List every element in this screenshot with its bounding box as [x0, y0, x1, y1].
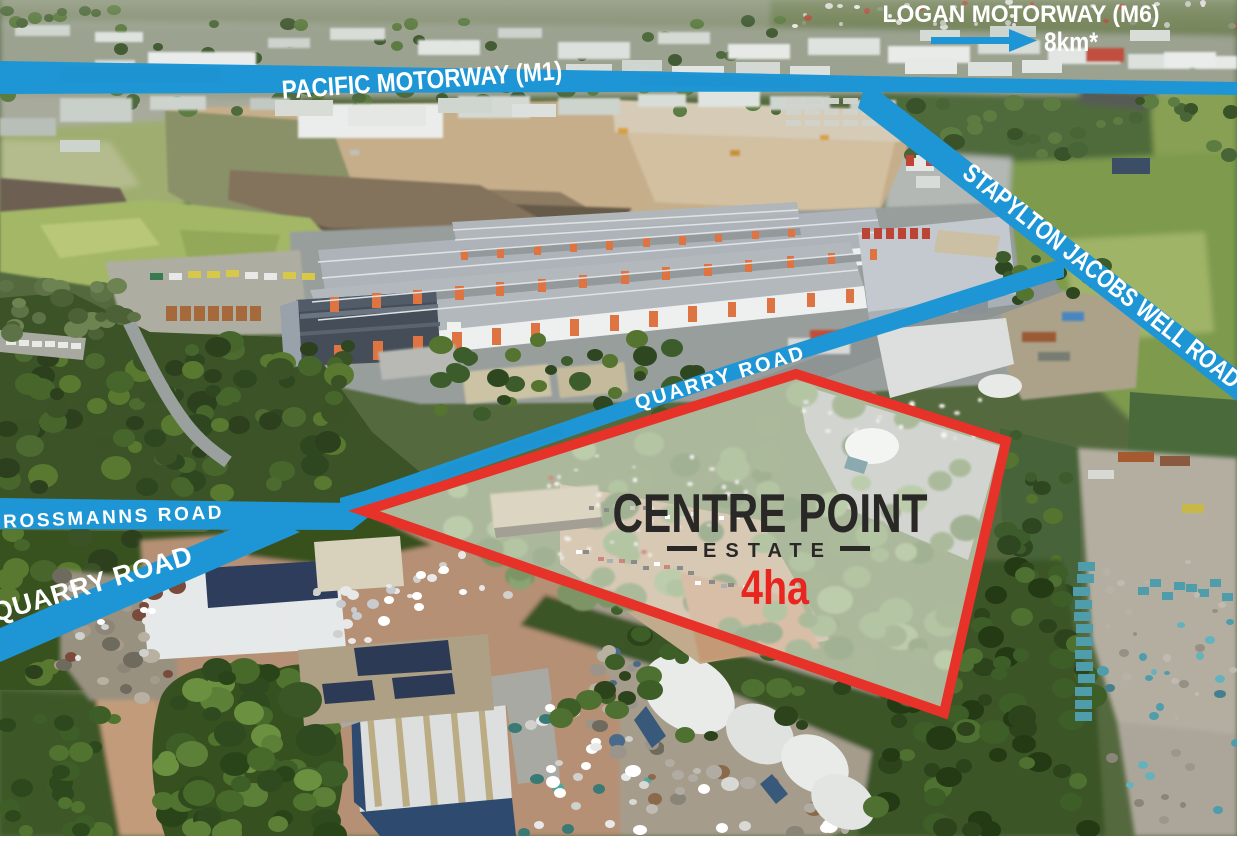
- svg-text:4ha: 4ha: [741, 562, 809, 615]
- svg-text:8km*: 8km*: [1044, 27, 1098, 57]
- svg-text:ESTATE: ESTATE: [703, 540, 833, 562]
- svg-text:CENTRE POINT: CENTRE POINT: [613, 482, 928, 544]
- svg-text:LOGAN MOTORWAY (M6): LOGAN MOTORWAY (M6): [883, 1, 1160, 28]
